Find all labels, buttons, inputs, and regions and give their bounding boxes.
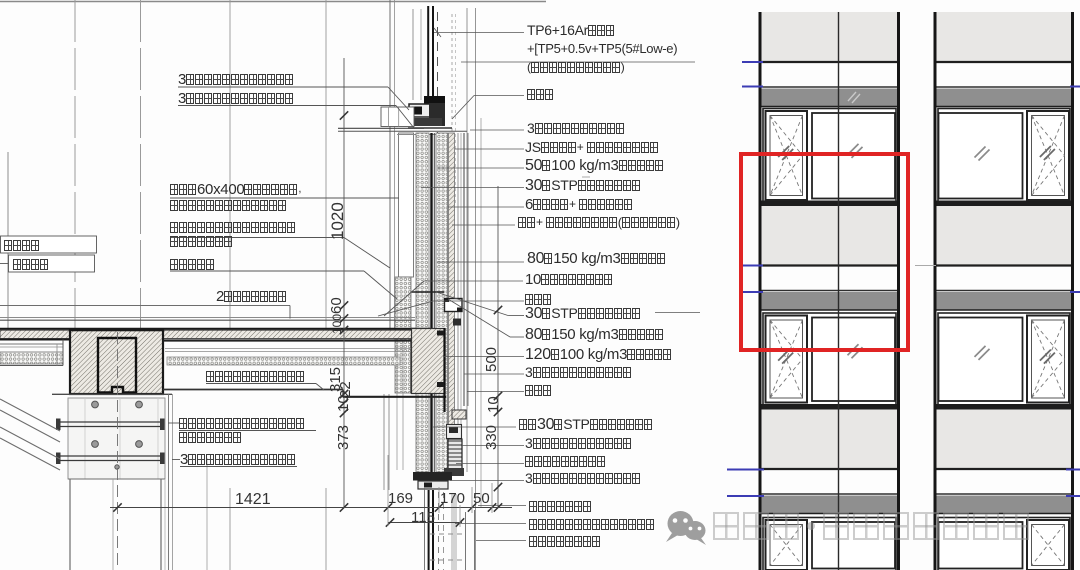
svg-text:330: 330	[483, 425, 500, 450]
svg-text:10: 10	[335, 395, 352, 412]
svg-text:100: 100	[330, 314, 344, 334]
svg-text:373: 373	[335, 425, 352, 450]
svg-text:1421: 1421	[235, 491, 271, 508]
svg-text:115: 115	[411, 509, 435, 526]
svg-text:170: 170	[440, 490, 465, 507]
svg-text:1020: 1020	[328, 202, 347, 240]
svg-text:60: 60	[328, 297, 345, 314]
svg-text:500: 500	[483, 347, 500, 372]
svg-text:50: 50	[473, 490, 490, 507]
svg-text:10: 10	[485, 396, 502, 413]
svg-text:169: 169	[388, 490, 413, 507]
